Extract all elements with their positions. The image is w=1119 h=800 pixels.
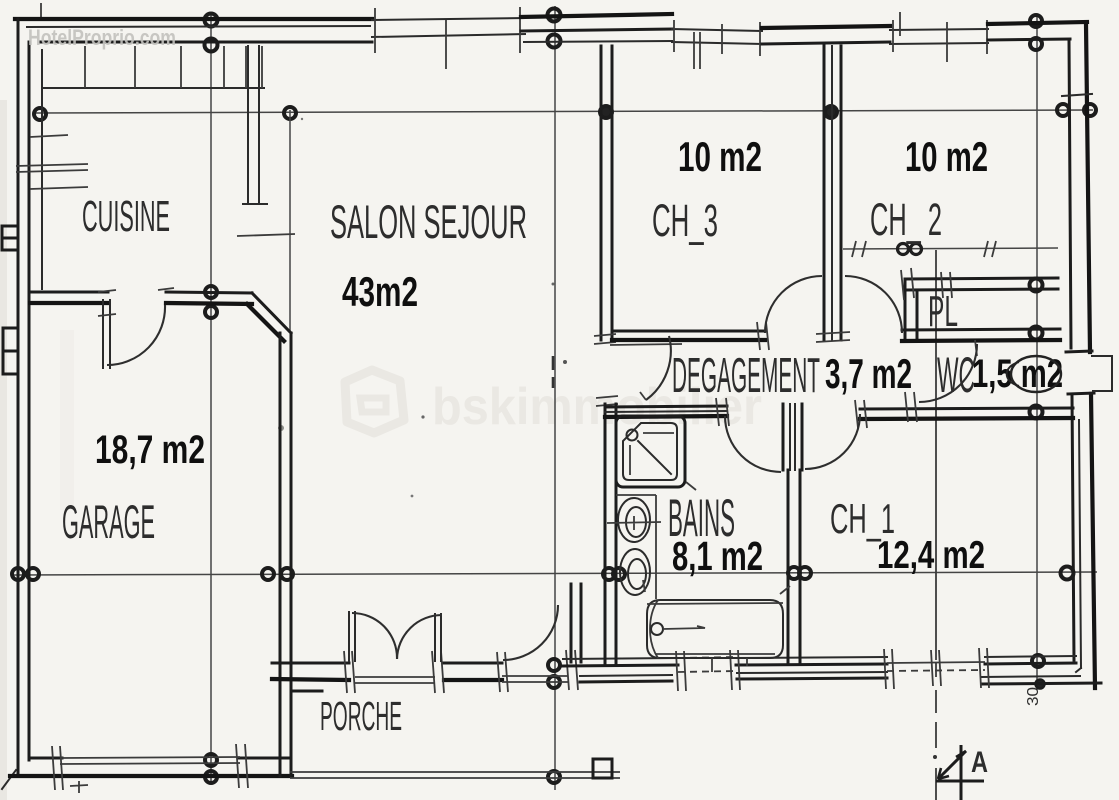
svg-text:30: 30 [1025, 687, 1042, 706]
svg-text:SALON SEJOUR: SALON SEJOUR [330, 195, 527, 248]
svg-text:CUISINE: CUISINE [82, 192, 170, 241]
svg-text:CH_ 2: CH_ 2 [870, 194, 942, 245]
svg-text:3,7 m2: 3,7 m2 [825, 350, 912, 397]
svg-text:CH_3: CH_3 [652, 195, 718, 246]
svg-text:12,4 m2: 12,4 m2 [877, 534, 985, 577]
svg-text:8,1 m2: 8,1 m2 [672, 533, 763, 579]
svg-text:PORCHE: PORCHE [320, 693, 402, 739]
svg-text:43m2: 43m2 [342, 268, 418, 315]
svg-text:WC: WC [937, 347, 975, 403]
svg-text:18,7 m2: 18,7 m2 [95, 428, 205, 472]
svg-text:GARAGE: GARAGE [62, 495, 155, 548]
svg-text:10 m2: 10 m2 [678, 133, 762, 180]
svg-text:DEGAGEMENT: DEGAGEMENT [672, 349, 820, 403]
svg-text:PL: PL [928, 287, 958, 336]
svg-text:10 m2: 10 m2 [905, 133, 988, 180]
svg-text:A: A [971, 746, 988, 779]
svg-text:HotelProprio.com: HotelProprio.com [28, 25, 176, 50]
